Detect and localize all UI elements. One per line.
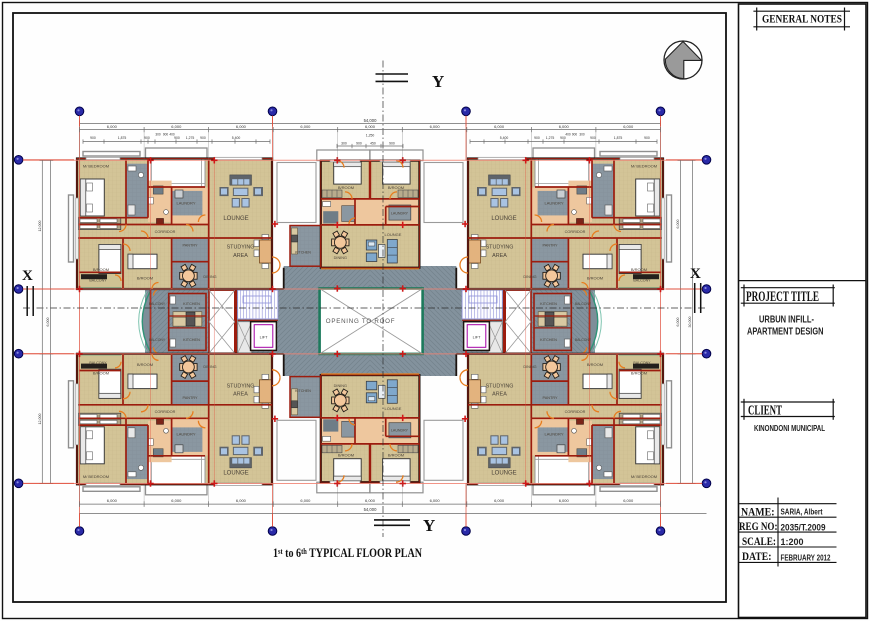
svg-text:6,000: 6,000 [623,124,634,129]
svg-text:B/ROOM: B/ROOM [137,362,153,367]
svg-text:STUDYING: STUDYING [227,245,255,251]
svg-text:AREA: AREA [233,253,248,259]
svg-text:PANTRY: PANTRY [182,396,198,400]
svg-text:DINING: DINING [523,365,536,369]
svg-text:30,000: 30,000 [688,317,692,328]
svg-text:LAUNDRY: LAUNDRY [391,211,409,215]
svg-text:900: 900 [389,141,395,145]
svg-text:900: 900 [534,136,540,140]
svg-text:1st to 6th TYPICAL FLOOR PLAN: 1st to 6th TYPICAL FLOOR PLAN [273,546,422,560]
svg-text:6,000: 6,000 [236,124,247,129]
svg-text:X: X [22,268,33,284]
svg-text:6,000: 6,000 [559,124,570,129]
svg-text:6,000: 6,000 [494,124,505,129]
svg-text:OPENING TO ROOF: OPENING TO ROOF [326,318,395,325]
svg-text:6,000: 6,000 [559,498,570,503]
svg-text:SARIA, Albert: SARIA, Albert [781,507,823,517]
svg-text:400: 400 [169,133,175,137]
svg-text:M/ BEDROOM: M/ BEDROOM [631,474,657,479]
svg-text:54,000: 54,000 [364,507,377,512]
svg-text:BALCONY: BALCONY [149,338,166,342]
svg-text:900: 900 [572,133,578,137]
svg-text:CLIENT: CLIENT [748,403,782,418]
svg-text:5,400: 5,400 [500,136,509,140]
svg-text:LOUNGE: LOUNGE [491,471,516,477]
svg-text:6,000: 6,000 [430,498,441,503]
svg-text:X: X [690,266,701,282]
svg-text:DATE:: DATE: [742,549,772,563]
svg-text:900: 900 [163,133,169,137]
svg-text:BALCONY: BALCONY [575,338,592,342]
svg-text:DINING: DINING [203,275,216,279]
svg-text:LAUNDRY: LAUNDRY [176,201,195,206]
svg-text:1,250: 1,250 [366,134,375,138]
svg-text:1,275: 1,275 [186,136,195,140]
svg-text:BALCONY: BALCONY [149,302,166,306]
svg-text:LAUNDRY: LAUNDRY [544,201,563,206]
svg-text:CORRIDOR: CORRIDOR [155,230,176,234]
svg-text:6,000: 6,000 [365,124,376,129]
svg-text:M/ BEDROOM: M/ BEDROOM [83,474,109,479]
svg-text:DINING: DINING [334,384,347,388]
svg-text:BALCONY: BALCONY [89,279,107,283]
svg-text:900: 900 [90,136,96,140]
svg-text:URBUN INFILL-: URBUN INFILL- [759,314,814,326]
svg-text:CORRIDOR: CORRIDOR [565,230,586,234]
svg-text:6,000: 6,000 [107,124,118,129]
svg-text:KITCHEN: KITCHEN [295,251,311,255]
svg-text:KITCHEN: KITCHEN [295,389,311,393]
svg-text:Y: Y [432,72,444,91]
svg-text:BALCONY: BALCONY [89,361,107,365]
svg-text:KITCHEN: KITCHEN [183,302,200,306]
svg-text:6,000: 6,000 [236,498,247,503]
svg-text:DINING: DINING [203,365,216,369]
svg-text:6,000: 6,000 [171,124,182,129]
svg-text:B/ROOM: B/ROOM [137,276,153,281]
svg-text:900: 900 [200,136,206,140]
svg-text:PROJECT TITLE: PROJECT TITLE [746,289,819,305]
svg-text:6,000: 6,000 [676,220,680,229]
svg-text:KINONDONI MUNICIPAL: KINONDONI MUNICIPAL [754,424,825,433]
svg-text:6,000: 6,000 [623,498,634,503]
svg-text:B/ROOM: B/ROOM [631,267,647,272]
svg-text:B/ROOM: B/ROOM [338,453,354,458]
svg-text:6,000: 6,000 [171,498,182,503]
svg-text:B/ROOM: B/ROOM [93,267,109,272]
svg-text:6,000: 6,000 [300,498,311,503]
svg-text:900: 900 [356,141,362,145]
svg-text:DINING: DINING [334,256,347,260]
svg-text:B/ROOM: B/ROOM [388,185,404,190]
svg-text:6,000: 6,000 [300,124,311,129]
svg-text:B/ROOM: B/ROOM [338,185,354,190]
svg-text:FEBRUARY 2012: FEBRUARY 2012 [781,553,831,563]
svg-text:B/ROOM: B/ROOM [388,453,404,458]
svg-text:5,400: 5,400 [232,136,241,140]
svg-text:LIFT: LIFT [260,336,268,340]
svg-text:CORRIDOR: CORRIDOR [565,410,586,414]
svg-text:6,000: 6,000 [676,318,680,327]
svg-text:KITCHEN: KITCHEN [540,302,557,306]
svg-text:B/ROOM: B/ROOM [587,362,603,367]
svg-text:BALCONY: BALCONY [575,302,592,306]
svg-text:SCALE:: SCALE: [742,534,776,548]
svg-text:6,000: 6,000 [107,498,118,503]
svg-text:M/ BEDROOM: M/ BEDROOM [631,164,657,169]
svg-text:CORRIDOR: CORRIDOR [155,410,176,414]
svg-text:LOUNGE: LOUNGE [223,216,248,222]
svg-text:AREA: AREA [233,392,248,398]
svg-text:900: 900 [144,136,150,140]
svg-text:6,000: 6,000 [430,124,441,129]
svg-text:1,275: 1,275 [546,136,555,140]
svg-text:54,000: 54,000 [364,118,377,123]
svg-text:STUDYING: STUDYING [486,245,514,251]
svg-text:1,875: 1,875 [614,136,623,140]
svg-text:PANTRY: PANTRY [542,244,558,248]
svg-text:BALCONY: BALCONY [633,361,651,365]
svg-text:6,000: 6,000 [365,498,376,503]
svg-text:PANTRY: PANTRY [182,244,198,248]
svg-text:900: 900 [174,136,180,140]
svg-text:AREA: AREA [492,253,507,259]
svg-text:LAUNDRY: LAUNDRY [176,432,195,437]
svg-text:GENERAL NOTES: GENERAL NOTES [762,12,842,26]
svg-text:KITCHEN: KITCHEN [540,338,557,342]
svg-text:300: 300 [341,141,347,145]
svg-text:NAME:: NAME: [741,505,775,519]
svg-text:6,000: 6,000 [494,498,505,503]
svg-text:B/ROOM: B/ROOM [93,371,109,376]
svg-text:12,000: 12,000 [38,414,42,425]
svg-text:STUDYING: STUDYING [227,384,255,390]
svg-text:1:200: 1:200 [781,537,804,547]
svg-text:300: 300 [579,133,585,137]
svg-text:300: 300 [155,133,161,137]
svg-text:900: 900 [590,136,596,140]
svg-text:1,875: 1,875 [118,136,127,140]
svg-text:DINING: DINING [523,275,536,279]
svg-text:LOUNGE: LOUNGE [491,216,516,222]
svg-text:KITCHEN: KITCHEN [183,338,200,342]
svg-text:M/ BEDROOM: M/ BEDROOM [83,164,109,169]
svg-text:Y: Y [423,516,435,535]
svg-text:B/ROOM: B/ROOM [587,276,603,281]
svg-text:LAUNDRY: LAUNDRY [391,428,409,432]
svg-text:STUDYING: STUDYING [486,384,514,390]
svg-text:900: 900 [644,136,650,140]
svg-text:BALCONY: BALCONY [633,279,651,283]
svg-text:PANTRY: PANTRY [542,396,558,400]
svg-text:LIFT: LIFT [473,336,481,340]
svg-text:AREA: AREA [492,392,507,398]
svg-text:450: 450 [370,141,376,145]
svg-text:2035/T.2009: 2035/T.2009 [781,523,826,533]
svg-text:LAUNDRY: LAUNDRY [544,432,563,437]
svg-text:REG NO:: REG NO: [739,519,778,533]
svg-text:LOUNGE: LOUNGE [385,406,402,411]
svg-text:12,000: 12,000 [38,221,42,232]
svg-text:6,000: 6,000 [46,318,50,327]
svg-text:400: 400 [565,133,571,137]
svg-text:B/ROOM: B/ROOM [631,371,647,376]
svg-text:APARTMENT DESIGN: APARTMENT DESIGN [747,325,824,337]
svg-text:LOUNGE: LOUNGE [385,232,402,237]
svg-text:LOUNGE: LOUNGE [223,471,248,477]
